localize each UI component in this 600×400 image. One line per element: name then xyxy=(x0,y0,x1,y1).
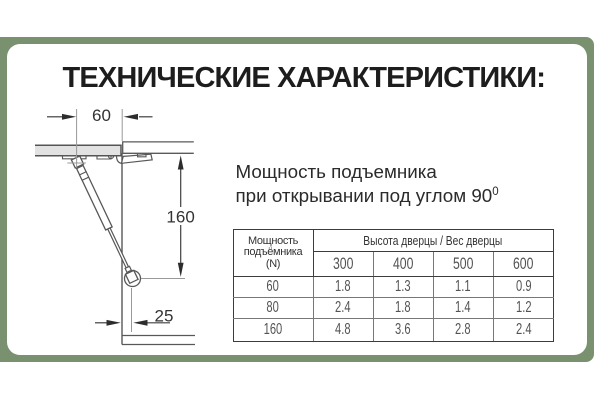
svg-text:160: 160 xyxy=(166,207,194,226)
svg-text:25: 25 xyxy=(155,306,174,325)
svg-text:60: 60 xyxy=(92,106,111,125)
